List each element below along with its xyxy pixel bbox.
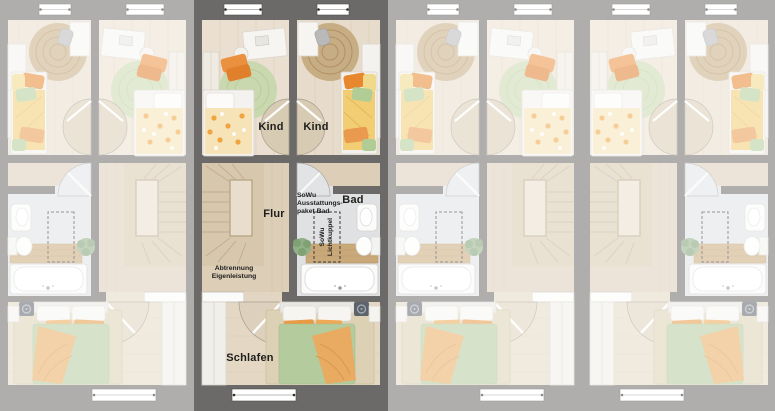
unit-3-hotspot[interactable] <box>388 0 582 411</box>
floorplan-canvas: Kind Kind Flur Bad Schlafen SoWu Ausstat… <box>0 0 775 411</box>
unit-1-hotspot[interactable] <box>0 0 194 411</box>
unit-4-hotspot[interactable] <box>582 0 775 411</box>
unit-2-hotspot[interactable] <box>194 0 388 411</box>
